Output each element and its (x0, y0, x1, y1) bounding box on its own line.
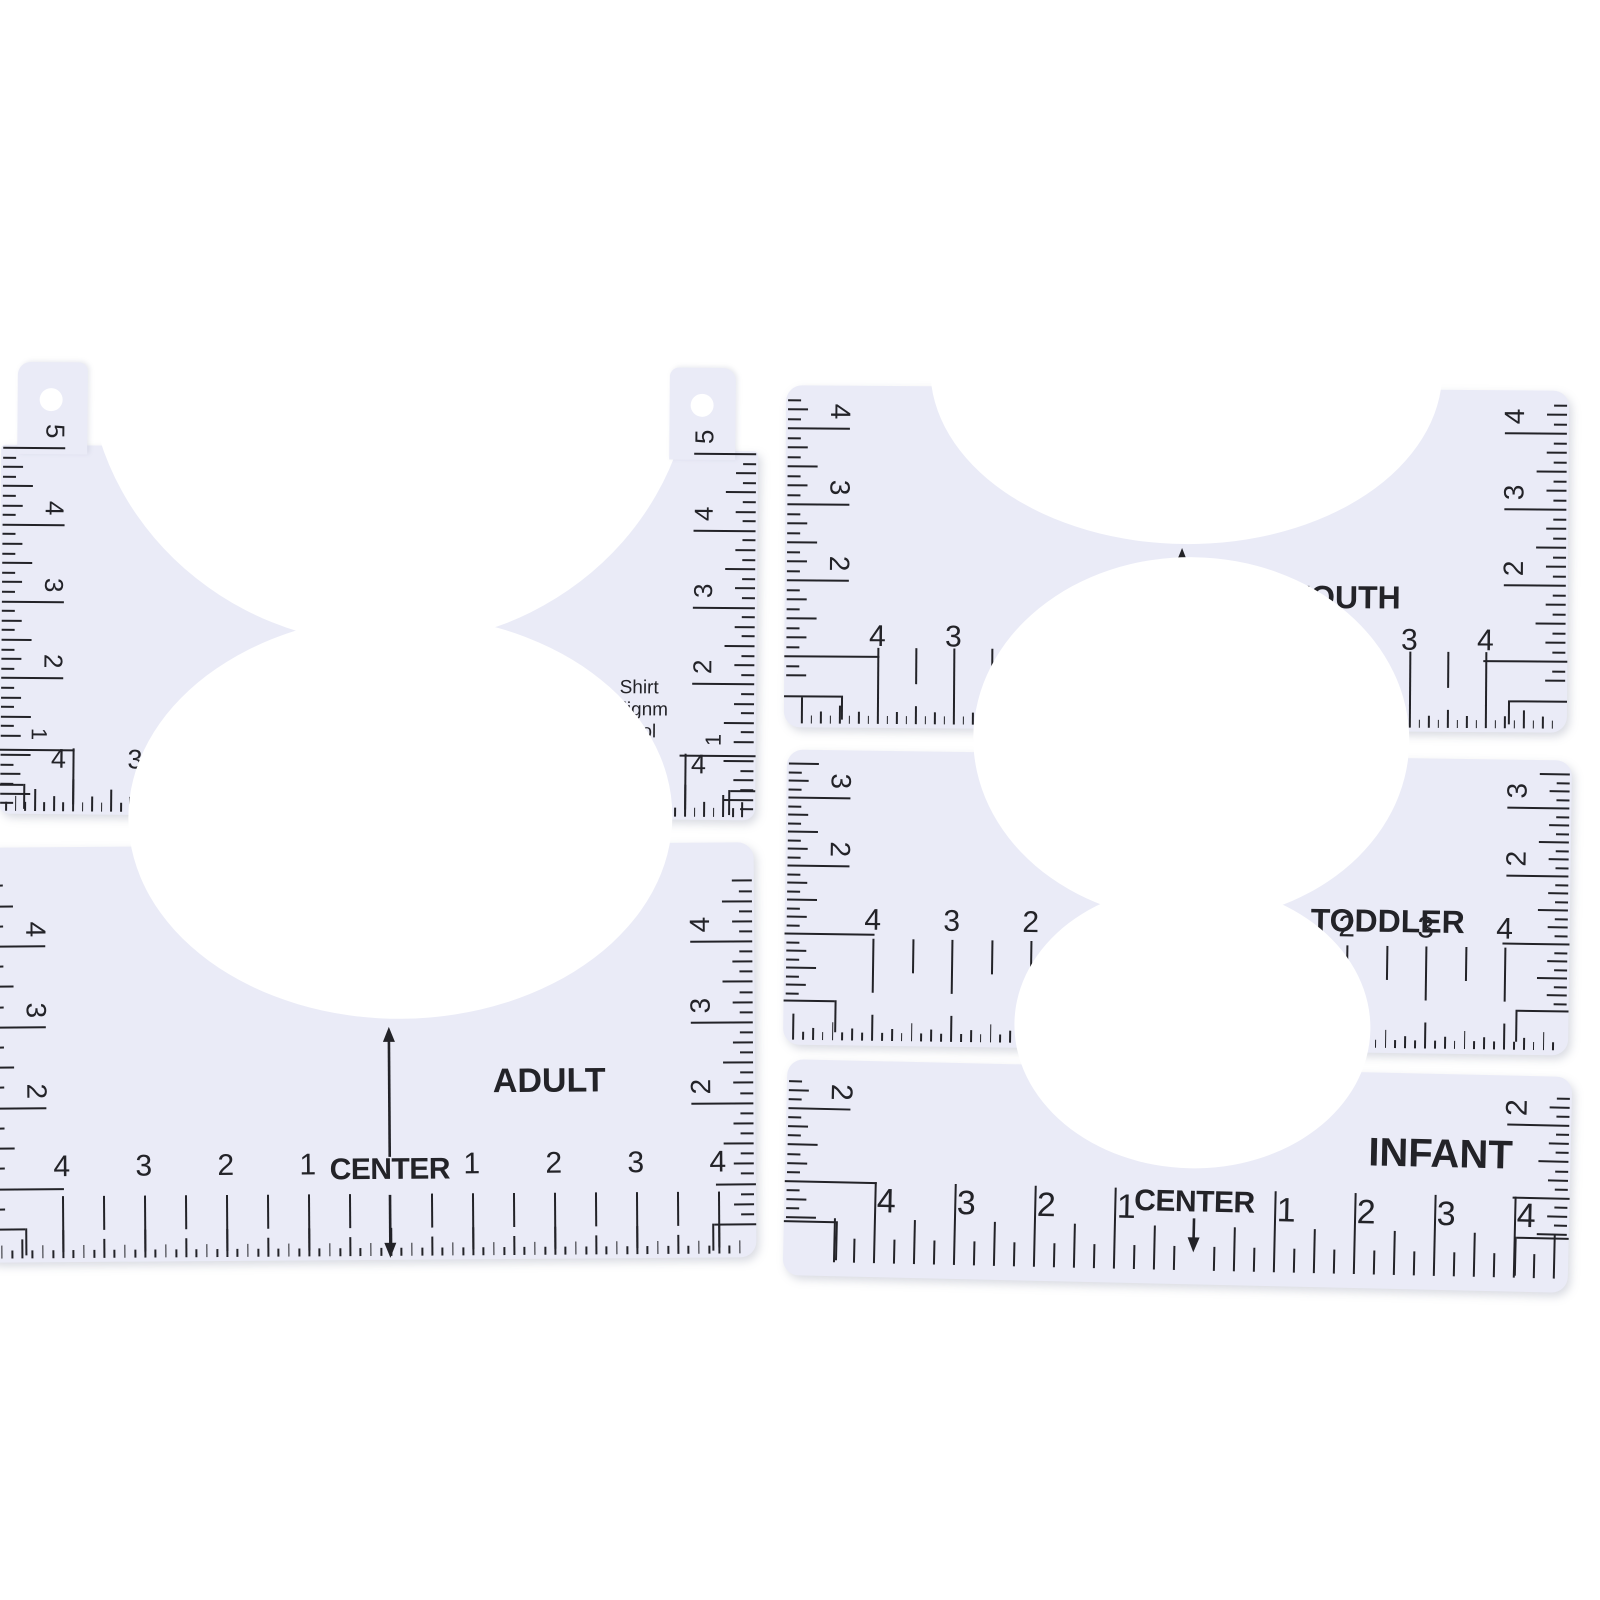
edge-ruler-tick (1523, 710, 1525, 728)
side-scale-tick (741, 693, 754, 695)
side-scale-tick (0, 792, 30, 794)
edge-ruler-tick (940, 1034, 942, 1042)
side-scale-tick (1545, 680, 1565, 682)
edge-ruler-tick (1483, 1037, 1485, 1049)
edge-ruler-tick (1532, 720, 1534, 728)
edge-ruler-tick (462, 1247, 464, 1255)
edge-ruler-tick (871, 1015, 873, 1041)
side-scale-tick (1546, 566, 1566, 568)
inch-number: 3 (627, 1148, 644, 1178)
side-scale-tick (2, 639, 32, 641)
side-scale-tick (3, 485, 33, 487)
side-scale-tick (786, 646, 799, 648)
edge-ruler-tick (708, 1246, 710, 1254)
hang-tab-left (17, 362, 88, 455)
edge-ruler-tick (1444, 1037, 1446, 1049)
side-scale-tick (733, 779, 753, 781)
side-scale-tick (743, 501, 756, 503)
edge-ruler-tick (960, 1034, 962, 1042)
inch-number: 3 (1401, 626, 1418, 656)
side-scale-tick (741, 1213, 754, 1215)
side-scale-tick (1, 696, 21, 698)
side-scale-tick (787, 1189, 800, 1191)
edge-ruler-tick (930, 1030, 932, 1042)
side-scale-tick (1554, 1003, 1567, 1005)
side-scale-number: 2 (40, 654, 66, 669)
side-scale-tick (0, 764, 13, 766)
center-label: CENTER (1134, 1186, 1255, 1219)
side-scale-tick (733, 1082, 753, 1084)
half-inch-tick (1447, 652, 1449, 688)
side-scale-tick (788, 418, 801, 420)
side-scale-number: 4 (686, 917, 714, 933)
edge-ruler-tick (829, 716, 831, 724)
edge-ruler-tick (83, 1245, 85, 1258)
edge-ruler-tick (308, 1228, 310, 1256)
side-scale-tick (787, 890, 800, 892)
edge-ruler-tick (503, 1247, 505, 1255)
side-scale-tick (1, 754, 31, 756)
edge-ruler-tick (72, 779, 74, 811)
side-scale-tick (787, 532, 800, 534)
side-scale-tick (787, 882, 807, 884)
side-scale-tick (2, 552, 15, 554)
half-inch-tick (185, 1195, 187, 1229)
edge-ruler-tick (694, 808, 696, 817)
side-scale-tick (0, 1208, 5, 1210)
side-scale-inch-line (1504, 508, 1566, 511)
side-scale-tick (723, 981, 753, 983)
inch-number: 4 (864, 906, 881, 936)
edge-ruler-tick (360, 1248, 362, 1256)
edge-ruler-tick (196, 1249, 198, 1257)
edge-ruler-tick (524, 1247, 526, 1255)
side-scale-tick (743, 463, 756, 465)
edge-ruler-tick (851, 1028, 853, 1040)
side-scale-tick (1537, 977, 1567, 979)
side-scale-tick (743, 520, 756, 522)
edge-ruler-tick (1473, 1041, 1475, 1049)
side-scale-tick (742, 578, 755, 580)
inch-number: 4 (1516, 1199, 1536, 1233)
side-scale-tick (724, 760, 754, 762)
side-scale-tick (740, 1072, 753, 1074)
side-scale-tick (1555, 935, 1568, 937)
edge-ruler-tick (103, 1239, 105, 1258)
side-scale-tick (742, 597, 755, 599)
side-scale-tick (787, 873, 800, 875)
side-scale-number: 2 (22, 1083, 50, 1099)
edge-ruler-tick (698, 1241, 700, 1254)
side-scale-tick (1556, 867, 1569, 869)
edge-ruler-tick (810, 715, 812, 723)
half-inch-tick (595, 1192, 597, 1226)
side-scale-tick (789, 780, 809, 782)
side-scale-tick (1557, 1097, 1570, 1099)
half-inch-tick (677, 1192, 679, 1226)
edge-ruler-tick (647, 1246, 649, 1254)
edge-ruler-tick (684, 785, 686, 817)
side-scale-tick (1538, 909, 1568, 911)
side-scale-tick (3, 456, 16, 458)
neck-cutout (127, 613, 674, 1021)
side-scale-tick (1556, 816, 1569, 818)
side-scale-tick (787, 924, 800, 926)
side-scale-tick (1, 706, 14, 708)
side-scale-tick (1, 725, 14, 727)
side-scale-tick (787, 551, 800, 553)
side-scale-tick (740, 991, 753, 993)
side-scale-tick (788, 839, 801, 841)
edge-ruler-tick (667, 1246, 669, 1254)
side-scale-tick (742, 636, 755, 638)
side-scale-tick (0, 925, 3, 927)
edge-ruler-tick (11, 1250, 13, 1258)
side-scale-tick (786, 674, 806, 676)
edge-ruler-tick (858, 712, 860, 724)
inch-number: 4 (1477, 626, 1494, 656)
side-scale-number: 3 (687, 998, 715, 1014)
edge-ruler-tick (1447, 710, 1449, 728)
edge-ruler-tick (729, 1245, 731, 1253)
side-scale-tick (739, 910, 752, 912)
side-scale-tick (1556, 850, 1569, 852)
side-scale-tick (2, 543, 22, 545)
edge-ruler-tick (881, 1033, 883, 1041)
edge-ruler-tick (953, 698, 955, 724)
side-scale-tick (741, 655, 754, 657)
side-scale-tick (787, 598, 807, 600)
corner-mark (23, 784, 25, 809)
side-scale-tick (1, 658, 21, 660)
side-scale-tick (1549, 1143, 1569, 1145)
neck-cutout (85, 66, 696, 647)
side-scale-tick (788, 1125, 808, 1127)
hang-tab-right (669, 368, 736, 461)
side-scale-tick (724, 1142, 754, 1144)
edge-ruler-tick (237, 1249, 239, 1257)
side-scale-number: 5 (691, 429, 717, 444)
side-scale-tick (1536, 547, 1566, 549)
side-scale-tick (1557, 782, 1570, 784)
side-scale-inch-line (1504, 584, 1566, 587)
edge-ruler-tick (43, 802, 45, 811)
edge-ruler-tick (513, 1236, 515, 1255)
edge-ruler-tick (1428, 716, 1430, 728)
side-scale-tick (788, 856, 801, 858)
side-scale-tick (0, 773, 20, 775)
side-scale-tick (789, 1080, 802, 1082)
side-scale-tick (739, 930, 752, 932)
inch-number: 2 (1338, 912, 1355, 942)
side-scale-tick (740, 1011, 753, 1013)
side-scale-tick (735, 626, 755, 628)
side-scale-tick (2, 533, 15, 535)
edge-ruler-tick (924, 716, 926, 724)
side-scale-inch-line (1505, 432, 1567, 435)
edge-ruler-tick (226, 1229, 228, 1257)
inch-number: 3 (135, 1152, 152, 1182)
edge-ruler-tick (5, 802, 7, 811)
edge-ruler-tick (943, 716, 945, 724)
side-scale-tick (787, 589, 800, 591)
inch-number: 3 (943, 907, 960, 937)
edge-ruler-tick (155, 1249, 157, 1257)
side-scale-tick (740, 1112, 753, 1114)
side-scale-tick (788, 408, 808, 410)
edge-ruler-tick (1463, 1031, 1465, 1049)
side-scale-tick (739, 890, 752, 892)
side-scale-tick (734, 1163, 754, 1165)
side-scale-tick (788, 814, 808, 816)
side-scale-tick (1553, 613, 1566, 615)
side-scale-tick (1556, 799, 1569, 801)
edge-ruler-tick (674, 808, 676, 817)
edge-ruler-tick (175, 1249, 177, 1257)
side-scale-tick (1555, 1188, 1568, 1190)
side-scale-tick (1, 735, 21, 737)
inch-number: 1 (463, 1149, 480, 1179)
edge-ruler-tick (110, 790, 112, 812)
side-scale-tick (787, 494, 800, 496)
side-scale-inch-line (0, 945, 45, 948)
inch-number: 2 (545, 1149, 562, 1179)
side-scale-tick (1, 668, 14, 670)
side-scale-tick (1, 648, 14, 650)
side-scale-tick (2, 572, 15, 574)
side-scale-tick (726, 491, 756, 493)
edge-ruler-tick (1384, 1030, 1386, 1048)
edge-ruler-tick (493, 1242, 495, 1255)
side-scale-tick (2, 591, 15, 593)
side-scale-number: 2 (826, 1084, 856, 1101)
side-scale-tick (3, 504, 23, 506)
side-scale-tick (740, 1031, 753, 1033)
edge-ruler-tick (585, 1246, 587, 1254)
side-scale-tick (786, 941, 799, 943)
side-scale-tick (786, 1198, 806, 1200)
side-scale-tick (787, 916, 807, 918)
side-scale-tick (1554, 952, 1567, 954)
side-scale-tick (1552, 632, 1565, 634)
side-scale-tick (2, 610, 15, 612)
side-scale-tick (733, 1001, 753, 1003)
edge-ruler-tick (999, 1035, 1001, 1043)
inch-number: 3 (945, 622, 962, 652)
side-scale-number: 2 (1503, 851, 1531, 867)
edge-ruler-tick (288, 1244, 290, 1257)
side-scale-number: 3 (41, 578, 67, 593)
inch-number: 4 (1496, 914, 1513, 944)
side-scale-tick (1547, 1215, 1567, 1217)
side-scale-tick (732, 961, 752, 963)
side-scale-tick (0, 1006, 4, 1008)
edge-ruler-tick (606, 1246, 608, 1254)
side-scale-tick (788, 465, 818, 467)
side-scale-tick (1553, 575, 1566, 577)
side-scale-tick (1556, 833, 1569, 835)
edge-ruler-tick (722, 795, 724, 817)
side-scale-tick (787, 617, 817, 619)
edge-ruler-tick (1466, 716, 1468, 728)
edge-ruler-tick (21, 1239, 23, 1258)
edge-ruler-tick (1404, 1036, 1406, 1048)
side-scale-number: 3 (827, 773, 855, 789)
side-scale-tick (1552, 670, 1565, 672)
edge-ruler-tick (1375, 1040, 1377, 1048)
edge-ruler-tick (713, 808, 715, 817)
side-scale-tick (724, 722, 754, 724)
side-scale-tick (732, 880, 752, 882)
side-scale-tick (786, 975, 799, 977)
side-scale-tick (787, 1171, 800, 1173)
inch-number: 4 (53, 1152, 70, 1182)
corner-mark (0, 1228, 25, 1230)
edge-ruler-tick (53, 796, 55, 811)
side-scale-number: 2 (1500, 560, 1528, 576)
edge-ruler-tick (861, 1033, 863, 1041)
corner-mark (784, 695, 841, 697)
side-scale-tick (788, 822, 801, 824)
side-scale-tick (0, 986, 14, 988)
edge-ruler-tick (442, 1247, 444, 1255)
side-scale-tick (1546, 604, 1566, 606)
edge-ruler-tick (1454, 1041, 1456, 1049)
edge-ruler-tick (1513, 1042, 1515, 1050)
corner-mark (0, 784, 23, 786)
edge-ruler-tick (739, 1240, 741, 1253)
center-up-arrow-icon (380, 1027, 399, 1157)
edge-ruler-tick (534, 1242, 536, 1255)
side-scale-tick (1550, 1106, 1570, 1108)
side-scale-tick (787, 522, 807, 524)
side-scale-tick (741, 1193, 754, 1195)
side-scale-tick (0, 905, 13, 907)
edge-ruler-tick (802, 1032, 804, 1040)
side-scale-tick (789, 771, 802, 773)
side-scale-tick (789, 788, 802, 790)
edge-ruler-tick (554, 1227, 556, 1255)
edge-ruler-tick (411, 1243, 413, 1256)
edge-ruler-tick (1424, 1022, 1426, 1048)
size-label-toddler: TODDLER (1311, 904, 1466, 938)
side-scale-tick (1, 716, 31, 718)
edge-ruler-tick (886, 716, 888, 724)
side-scale-tick (1554, 461, 1567, 463)
side-scale-tick (1548, 926, 1568, 928)
side-scale-tick (1550, 790, 1570, 792)
side-scale-tick (1553, 594, 1566, 596)
edge-ruler-tick (247, 1244, 249, 1257)
side-scale-tick (734, 1203, 754, 1205)
side-scale-tick (733, 1041, 753, 1043)
side-scale-tick (1548, 892, 1568, 894)
side-scale-tick (1553, 518, 1566, 520)
side-scale-tick (1554, 442, 1567, 444)
side-scale-tick (1547, 960, 1567, 962)
side-scale-tick (1555, 901, 1568, 903)
side-scale-tick (787, 1153, 800, 1155)
edge-ruler-tick (114, 1250, 116, 1258)
side-scale-tick (741, 1152, 754, 1154)
corner-mark (728, 790, 730, 815)
side-scale-tick (1552, 651, 1565, 653)
side-scale-tick (786, 992, 799, 994)
side-scale-tick (3, 514, 16, 516)
side-scale-number: 4 (1501, 408, 1529, 424)
side-scale-tick (734, 703, 754, 705)
side-scale-tick (786, 1207, 799, 1209)
side-scale-tick (788, 446, 808, 448)
side-scale-tick (1554, 404, 1567, 406)
side-scale-tick (0, 966, 3, 968)
edge-ruler-tick (801, 697, 803, 723)
side-scale-tick (742, 616, 755, 618)
edge-ruler-tick (1552, 1042, 1554, 1050)
side-scale-tick (2, 620, 22, 622)
edge-ruler-tick (63, 802, 65, 811)
side-scale-number: 2 (687, 1079, 715, 1095)
edge-ruler-tick (278, 1249, 280, 1257)
edge-ruler-tick (1418, 720, 1420, 728)
side-scale-tick (1547, 452, 1567, 454)
side-scale-tick (3, 466, 23, 468)
tshirt-ruler-product-photo: CENTER Shirt Alignm Tool INCHES 54325432… (0, 0, 1600, 1600)
side-scale-tick (1554, 1225, 1567, 1227)
side-scale-tick (3, 495, 16, 497)
edge-ruler-tick (206, 1244, 208, 1257)
side-scale-tick (789, 763, 819, 765)
side-scale-tick (1555, 918, 1568, 920)
side-scale-tick (788, 805, 801, 807)
side-scale-tick (786, 636, 806, 638)
side-scale-tick (2, 581, 22, 583)
side-scale-tick (1547, 994, 1567, 996)
edge-ruler-tick (867, 716, 869, 724)
edge-ruler-tick (257, 1249, 259, 1257)
side-scale-tick (1553, 556, 1566, 558)
edge-ruler-tick (1494, 720, 1496, 728)
corner-mark (841, 696, 843, 720)
side-scale-tick (0, 885, 3, 887)
corner-number: 1 (28, 728, 50, 740)
edge-ruler-tick (911, 1023, 913, 1041)
side-scale-tick (740, 1092, 753, 1094)
side-scale-tick (787, 627, 800, 629)
side-scale-tick (735, 549, 755, 551)
half-inch-tick (431, 1194, 433, 1228)
side-scale-number: 3 (825, 480, 853, 496)
side-scale-tick (787, 541, 817, 543)
center-label: CENTER (330, 1154, 451, 1185)
inch-tick (877, 648, 880, 702)
inch-number: 1 (1276, 1193, 1296, 1227)
edge-ruler-tick (452, 1242, 454, 1255)
edge-ruler-tick (34, 789, 36, 811)
edge-ruler-tick (1434, 1041, 1436, 1049)
side-scale-tick (1546, 528, 1566, 530)
size-label-adult: ADULT (493, 1063, 606, 1098)
edge-ruler-tick (891, 1029, 893, 1041)
edge-ruler-tick (920, 1033, 922, 1041)
inch-tick (953, 648, 956, 702)
edge-ruler-tick (1513, 720, 1515, 728)
side-scale-tick (722, 900, 752, 902)
side-scale-tick (733, 1122, 753, 1124)
edge-ruler-tick (298, 1248, 300, 1256)
side-scale-inch-line (691, 1102, 753, 1105)
edge-ruler-tick (901, 1033, 903, 1041)
